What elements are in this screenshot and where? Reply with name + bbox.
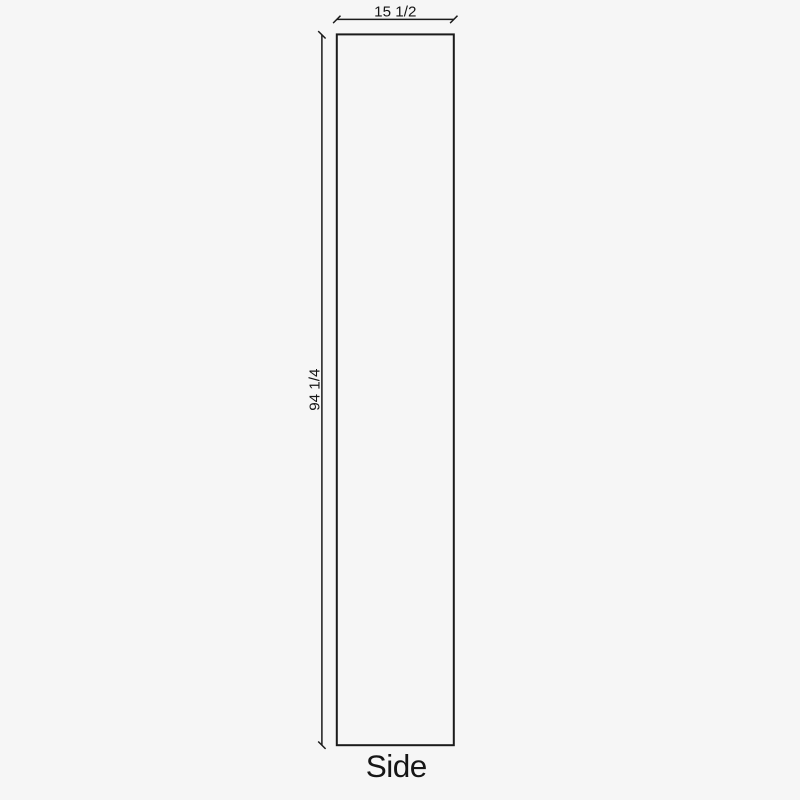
svg-text:Side: Side <box>366 748 427 784</box>
svg-text:15 1/2: 15 1/2 <box>374 4 416 21</box>
svg-text:94 1/4: 94 1/4 <box>306 369 323 411</box>
